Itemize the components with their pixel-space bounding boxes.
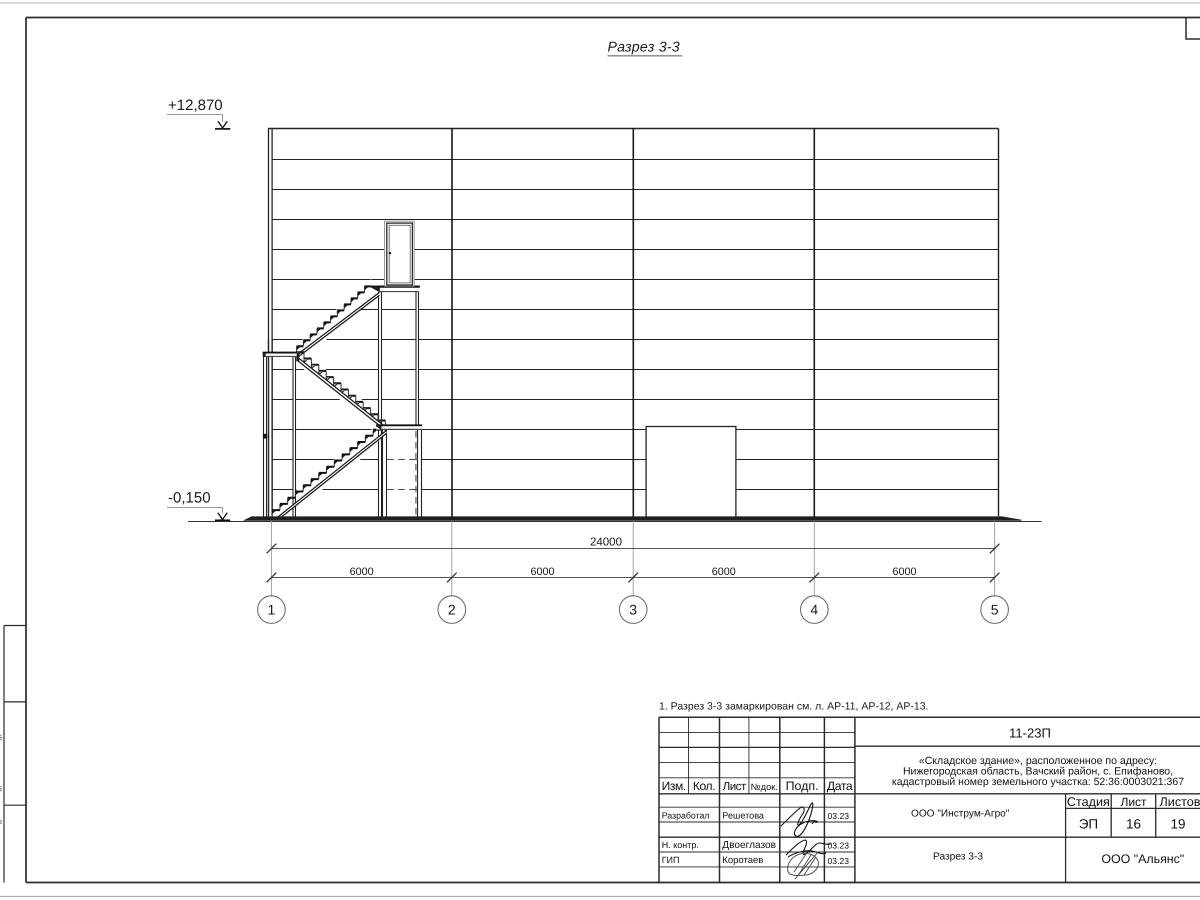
svg-text:4: 4 xyxy=(810,601,818,617)
svg-text:ГИП: ГИП xyxy=(662,855,680,865)
svg-text:Н. контр.: Н. контр. xyxy=(662,840,699,850)
svg-text:Двоеглазов: Двоеглазов xyxy=(722,840,776,851)
svg-text:5: 5 xyxy=(991,601,999,617)
svg-text:6000: 6000 xyxy=(892,566,916,578)
svg-text:Разрез 3-3: Разрез 3-3 xyxy=(933,852,983,863)
svg-text:Изм.: Изм. xyxy=(662,779,686,793)
svg-text:Подп.: Подп. xyxy=(786,779,819,793)
svg-text:Кол.: Кол. xyxy=(693,779,715,793)
svg-text:6000: 6000 xyxy=(712,566,736,578)
svg-text:ат: ат xyxy=(0,733,4,741)
svg-text:Коротаев: Коротаев xyxy=(722,855,763,866)
svg-text:Лист: Лист xyxy=(723,780,747,793)
svg-text:16: 16 xyxy=(1126,817,1141,832)
svg-text:Стадия: Стадия xyxy=(1067,795,1110,809)
svg-text:№док.: №док. xyxy=(751,782,778,792)
svg-text:2: 2 xyxy=(448,601,456,617)
svg-text:а: а xyxy=(0,820,4,824)
svg-text:6000: 6000 xyxy=(350,566,374,578)
svg-text:24000: 24000 xyxy=(590,537,622,549)
svg-text:Листов: Листов xyxy=(1160,795,1200,809)
svg-text:Дата: Дата xyxy=(827,779,853,793)
svg-text:ООО "Альянс": ООО "Альянс" xyxy=(1101,852,1184,866)
svg-text:03.23: 03.23 xyxy=(828,856,850,866)
svg-text:1. Разрез 3-3 замаркирован см.: 1. Разрез 3-3 замаркирован см. л. АР-11,… xyxy=(659,700,928,712)
svg-text:ЭП: ЭП xyxy=(1079,817,1098,832)
svg-text:Лист: Лист xyxy=(1120,795,1147,809)
svg-text:03.23: 03.23 xyxy=(828,841,850,851)
svg-text:кадастровый номер земельного у: кадастровый номер земельного участка: 52… xyxy=(892,776,1184,788)
svg-text:03.23: 03.23 xyxy=(828,811,850,821)
svg-text:6000: 6000 xyxy=(530,566,554,578)
svg-text:Решетова: Решетова xyxy=(722,811,765,821)
svg-text:+12,870: +12,870 xyxy=(168,97,223,114)
svg-text:ООО "Инструм-Агро": ООО "Инструм-Агро" xyxy=(911,809,1010,820)
svg-text:Разрез 3-3: Разрез 3-3 xyxy=(608,40,680,56)
svg-text:1: 1 xyxy=(268,601,276,617)
svg-text:11-23П: 11-23П xyxy=(1009,725,1051,740)
svg-text:-0,150: -0,150 xyxy=(168,490,211,507)
svg-text:ат: ат xyxy=(0,784,4,792)
svg-text:19: 19 xyxy=(1170,817,1185,832)
svg-text:Разработал: Разработал xyxy=(662,811,710,821)
svg-text:3: 3 xyxy=(629,601,637,617)
